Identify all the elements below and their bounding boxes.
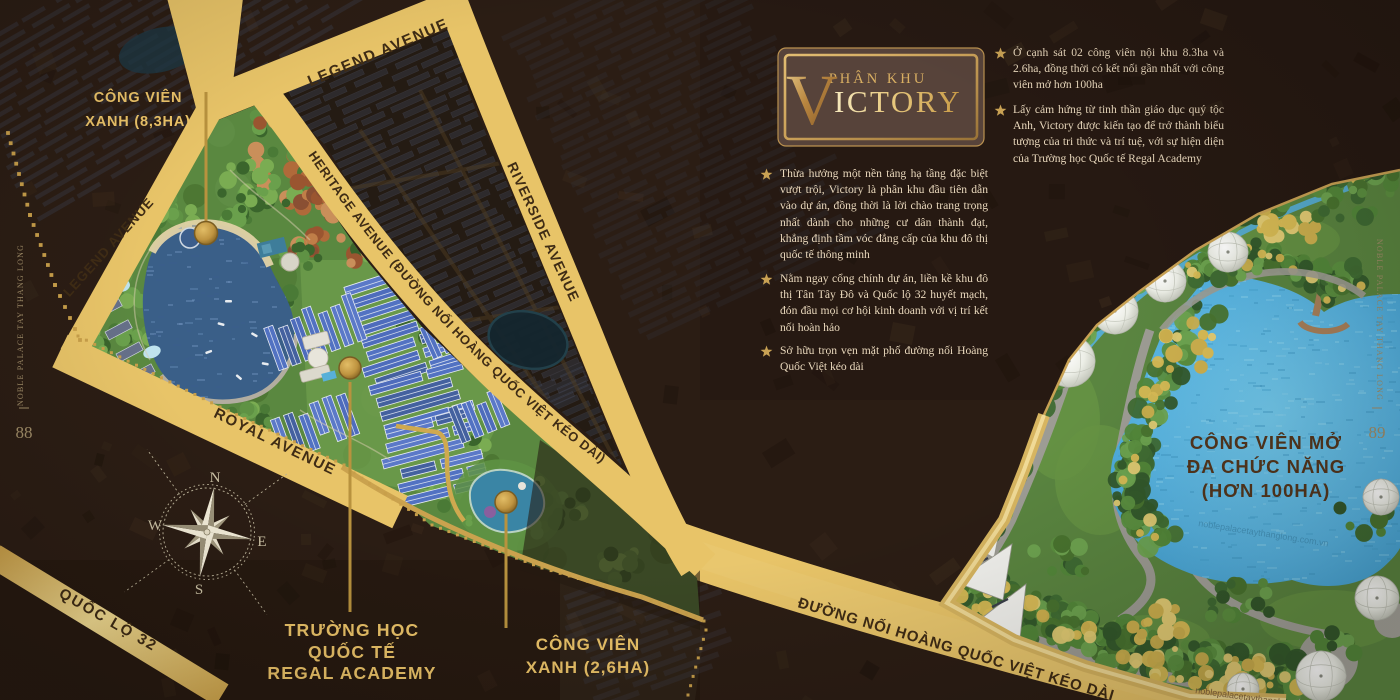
svg-text:XANH (8,3HA): XANH (8,3HA)	[85, 114, 190, 130]
svg-text:S: S	[195, 582, 203, 598]
svg-text:E: E	[257, 534, 266, 550]
svg-text:89: 89	[1369, 423, 1386, 442]
svg-text:CÔNG VIÊN: CÔNG VIÊN	[94, 88, 183, 106]
svg-text:TRƯỜNG HỌC: TRƯỜNG HỌC	[285, 619, 420, 640]
svg-text:NOBLE PALACE TAY THANG LONG: NOBLE PALACE TAY THANG LONG	[1375, 239, 1384, 401]
svg-text:QUỐC TẾ: QUỐC TẾ	[308, 641, 396, 662]
svg-text:88: 88	[16, 423, 33, 442]
svg-text:CÔNG VIÊN: CÔNG VIÊN	[536, 635, 640, 654]
svg-text:N: N	[210, 470, 221, 486]
svg-text:NOBLE PALACE TAY THANG LONG: NOBLE PALACE TAY THANG LONG	[16, 244, 25, 406]
svg-text:XANH (2,6HA): XANH (2,6HA)	[526, 658, 650, 677]
svg-text:W: W	[148, 518, 163, 534]
svg-text:REGAL ACADEMY: REGAL ACADEMY	[267, 663, 436, 683]
